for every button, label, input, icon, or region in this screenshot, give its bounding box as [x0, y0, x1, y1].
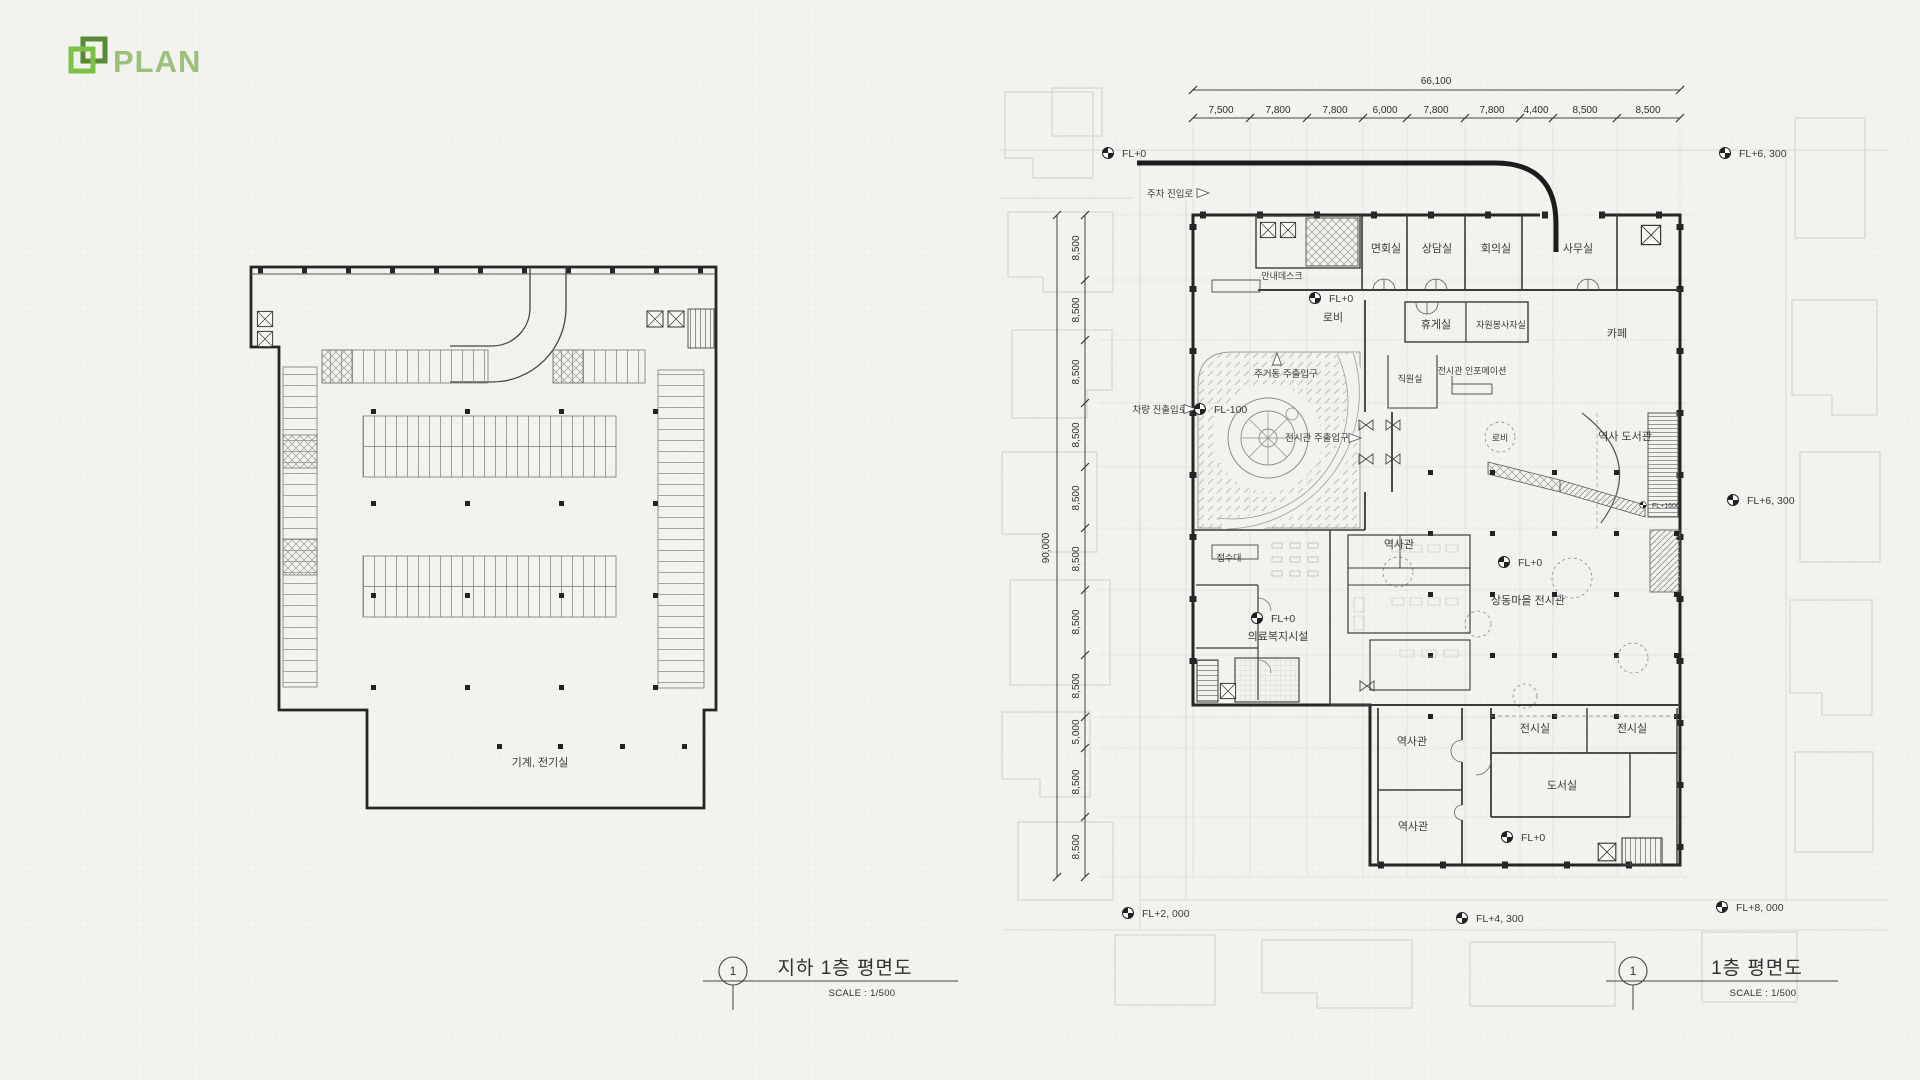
dim-top-seg: 7,800	[1479, 105, 1504, 116]
level-marker-icon	[1252, 613, 1263, 624]
room-label-exhibit-info: 전시관 인포메이션	[1438, 366, 1507, 376]
dim-left-seg: 8,500	[1071, 769, 1082, 794]
dim-left-seg: 8,500	[1071, 673, 1082, 698]
level-markers: FL+0 FL+6, 300 FL+6, 300 FL+2, 000 FL+4,…	[1103, 148, 1795, 926]
site-roads	[1000, 150, 1888, 930]
room-label-office: 사무실	[1563, 242, 1593, 255]
left-plan-title: 1 지하 1층 평면도 SCALE : 1/500	[703, 957, 958, 1010]
room-label-reception: 접수대	[1217, 552, 1242, 563]
level-marker-icon	[1310, 293, 1321, 304]
level-marker-icon	[1123, 908, 1134, 919]
dim-top-seg: 7,800	[1322, 105, 1347, 116]
dimension-chain-top: 66,100 7,500 7,800 7,800 6,000 7,800 7,8…	[1189, 76, 1684, 122]
room-label-meeting: 회의실	[1481, 242, 1511, 255]
room-label-cafe: 카페	[1607, 327, 1627, 340]
room-label-history-hall-s1: 역사관	[1397, 735, 1427, 748]
door-icon	[1386, 454, 1400, 464]
double-door-icon	[1373, 279, 1395, 290]
room-label-history-hall-s2: 역사관	[1398, 820, 1428, 833]
level-ramp: FL+1600	[1652, 503, 1680, 510]
dim-total-height: 90,000	[1041, 532, 1052, 563]
exhibition-entrance-wall	[1365, 300, 1392, 530]
dim-left-seg: 8,500	[1071, 235, 1082, 260]
level-marker-icon	[1457, 913, 1468, 924]
level-site-s: FL+4, 300	[1476, 913, 1524, 925]
left-plan-scale: SCALE : 1/500	[829, 988, 896, 999]
dim-top-seg: 7,800	[1265, 105, 1290, 116]
room-label-info-desk: 안내데스크	[1261, 271, 1302, 281]
level-plaza: FL-100	[1214, 404, 1247, 416]
door-icon	[1359, 420, 1373, 430]
waiting-chairs	[1272, 543, 1318, 576]
dim-left-seg: 8,500	[1071, 834, 1082, 859]
parking-stalls	[283, 350, 704, 688]
level-marker-icon	[1502, 832, 1513, 843]
double-door-icon	[1416, 303, 1438, 314]
dim-left-seg: 8,500	[1071, 546, 1082, 571]
dim-top-seg: 8,500	[1635, 105, 1660, 116]
leader-vehicle-entry: 차량 진출입로	[1132, 404, 1187, 416]
wall-column-marks	[1193, 215, 1680, 865]
dimension-chain-left: 90,000 8,500 8,500 8,500 8,500 8,500 8,5…	[1041, 211, 1089, 881]
level-medical: FL+0	[1271, 613, 1295, 625]
first-floor-plan: 면회실 상담실 회의실 사무실 안내데스크 로비 휴게실 자원봉사자실 카페 직…	[1103, 148, 1795, 926]
dim-left-seg: 5,000	[1071, 719, 1082, 744]
dim-left-seg: 8,500	[1071, 485, 1082, 510]
medical-block	[1193, 530, 1680, 705]
dim-top-seg: 7,800	[1423, 105, 1448, 116]
dim-top-seg: 4,400	[1523, 105, 1548, 116]
plan-logo: PLAN	[71, 39, 201, 79]
left-plan-title-text: 지하 1층 평면도	[777, 957, 912, 979]
elevator-icon	[1598, 843, 1616, 861]
room-label-staff: 직원실	[1398, 374, 1423, 384]
floor-plan-sheet: PLAN 66,100 7,500 7,800 7,800 6,000 7,80…	[0, 0, 1920, 1080]
room-label-medical: 의료복지시설	[1248, 630, 1309, 643]
level-site-e: FL+6, 300	[1747, 495, 1795, 507]
level-marker-icon	[1195, 404, 1206, 415]
room-label-lobby-n: 로비	[1323, 311, 1343, 324]
level-marker-icon	[1717, 902, 1728, 913]
double-door-icon	[1425, 279, 1447, 290]
room-label-lounge: 휴게실	[1421, 318, 1451, 331]
elevator-icon	[1260, 222, 1275, 237]
room-label-lobby-c: 로비	[1492, 433, 1509, 443]
room-label-exhibit-2: 전시실	[1617, 722, 1647, 735]
level-site-nw: FL+0	[1122, 148, 1146, 160]
dim-left-seg: 8,500	[1071, 609, 1082, 634]
leader-parking-entry: 주차 진입로	[1147, 188, 1194, 200]
room-label-exhibit-1: 전시실	[1520, 722, 1550, 735]
level-marker-icon	[1499, 557, 1510, 568]
level-marker-icon	[1640, 502, 1647, 509]
level-lobby: FL+0	[1329, 293, 1353, 305]
level-marker-icon	[1720, 148, 1731, 159]
room-label-history-library: 역사 도서관	[1598, 430, 1652, 443]
door-icon	[1359, 454, 1373, 464]
elevator-icon	[257, 331, 272, 346]
level-marker-icon	[1728, 495, 1739, 506]
room-label-visiting: 면회실	[1371, 242, 1401, 255]
right-plan-title-text: 1층 평면도	[1711, 957, 1803, 979]
room-label-library: 도서실	[1547, 779, 1577, 792]
level-hall: FL+0	[1518, 557, 1542, 569]
elevator-icon	[1280, 222, 1295, 237]
level-south: FL+0	[1521, 832, 1545, 844]
elevator-icon	[647, 311, 663, 327]
dim-left-seg: 8,500	[1071, 297, 1082, 322]
title-number: 1	[730, 964, 737, 978]
right-plan-scale: SCALE : 1/500	[1730, 988, 1797, 999]
elevator-icon	[257, 311, 272, 326]
door-icon	[1360, 681, 1374, 691]
leader-arrow-icon	[1197, 189, 1209, 198]
dim-top-seg: 7,500	[1208, 105, 1233, 116]
parking-outline	[251, 267, 716, 808]
dim-top-seg: 6,000	[1372, 105, 1397, 116]
elevator-icon	[1220, 683, 1235, 698]
north-rooms	[1256, 215, 1680, 290]
double-door-icon	[1577, 279, 1599, 290]
leader-exhibition-entrance: 전시관 주출입구	[1285, 432, 1349, 444]
elevator-icon	[1641, 225, 1660, 244]
room-label-village-exhibit: 상동마을 전시관	[1491, 594, 1565, 607]
dim-left-seg: 8,500	[1071, 422, 1082, 447]
exhibit-circles	[1383, 422, 1648, 708]
basement-parking-plan: 기계, 전기실	[251, 267, 716, 808]
stairs	[688, 309, 714, 348]
room-label-history-hall: 역사관	[1384, 538, 1414, 551]
dim-left-seg: 8,500	[1071, 359, 1082, 384]
title-number: 1	[1630, 964, 1637, 978]
logo-text: PLAN	[113, 44, 201, 79]
site-context-buildings	[1002, 88, 1880, 1008]
level-site-se: FL+8, 000	[1736, 902, 1784, 914]
leader-residential-entrance: 주거동 주출입구	[1254, 368, 1318, 380]
room-label-volunteer: 자원봉사자실	[1476, 320, 1526, 330]
door-icon	[1386, 420, 1400, 430]
level-site-ne: FL+6, 300	[1739, 148, 1787, 160]
elevator-icon	[668, 311, 684, 327]
building-outline	[1193, 215, 1680, 865]
level-marker-icon	[1103, 148, 1114, 159]
room-label-counsel: 상담실	[1422, 242, 1452, 255]
dim-total-width: 66,100	[1421, 76, 1452, 87]
dim-top-seg: 8,500	[1572, 105, 1597, 116]
level-site-sw: FL+2, 000	[1142, 908, 1190, 920]
room-label-mech-elec: 기계, 전기실	[512, 756, 569, 769]
